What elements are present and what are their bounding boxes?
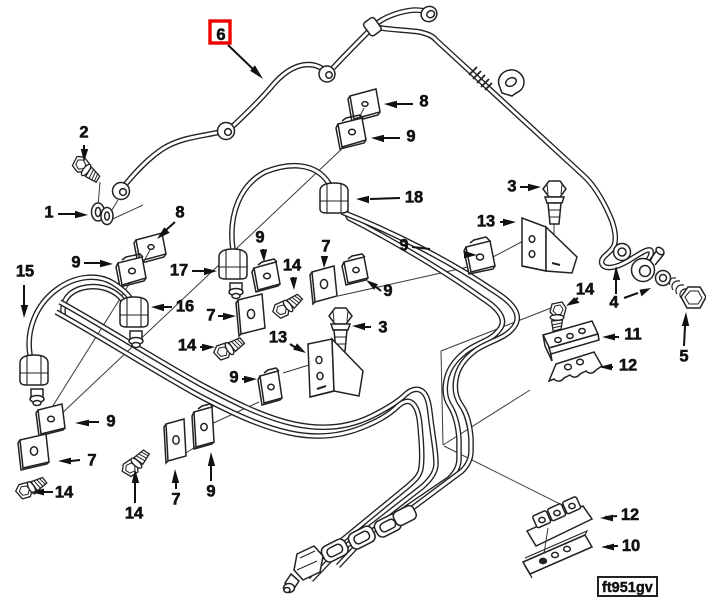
svg-text:9: 9 [229, 369, 238, 387]
svg-text:9: 9 [255, 229, 264, 247]
svg-text:12: 12 [621, 506, 639, 524]
svg-text:14: 14 [576, 281, 595, 299]
svg-text:6: 6 [216, 26, 225, 44]
svg-text:2: 2 [79, 124, 88, 142]
svg-text:14: 14 [178, 337, 197, 355]
svg-text:4: 4 [609, 294, 619, 312]
svg-text:14: 14 [125, 505, 144, 523]
svg-text:14: 14 [55, 484, 74, 502]
svg-text:3: 3 [507, 178, 516, 196]
svg-text:10: 10 [622, 537, 640, 555]
svg-text:5: 5 [679, 348, 688, 366]
svg-text:9: 9 [106, 413, 115, 431]
svg-text:9: 9 [71, 254, 80, 272]
svg-text:15: 15 [16, 263, 34, 281]
svg-text:3: 3 [378, 319, 387, 337]
svg-text:7: 7 [321, 238, 330, 256]
svg-text:7: 7 [171, 491, 180, 509]
svg-text:ft951gv: ft951gv [602, 580, 653, 596]
svg-text:17: 17 [170, 262, 188, 280]
svg-text:9: 9 [406, 128, 415, 146]
svg-text:13: 13 [269, 329, 287, 347]
svg-text:8: 8 [175, 204, 184, 222]
svg-text:7: 7 [87, 452, 96, 470]
svg-text:14: 14 [283, 257, 302, 275]
svg-text:18: 18 [405, 189, 423, 207]
svg-text:12: 12 [619, 357, 637, 375]
svg-text:9: 9 [399, 237, 408, 255]
svg-text:13: 13 [477, 213, 495, 231]
svg-text:16: 16 [176, 298, 194, 316]
svg-text:9: 9 [206, 483, 215, 501]
svg-text:9: 9 [383, 282, 392, 300]
svg-text:8: 8 [419, 93, 428, 111]
svg-text:1: 1 [44, 204, 53, 222]
svg-text:11: 11 [624, 326, 641, 344]
svg-text:7: 7 [206, 307, 215, 325]
